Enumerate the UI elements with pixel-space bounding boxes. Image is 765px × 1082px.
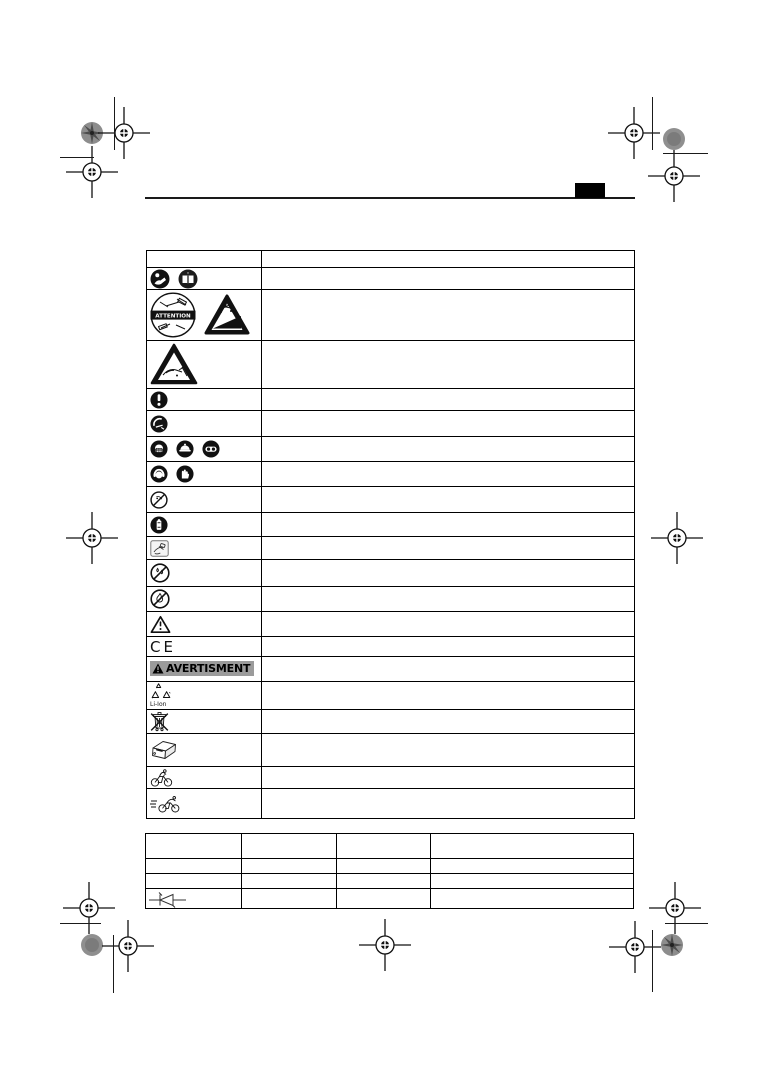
table-row <box>147 486 635 512</box>
no-touch-prohibition-icon <box>150 491 168 509</box>
general-warning-icon <box>150 615 171 634</box>
symbol-description <box>262 461 635 486</box>
dust-mask-icon <box>150 440 168 458</box>
table-row <box>146 889 634 909</box>
spec-cell <box>242 889 337 909</box>
symbol-cell <box>147 461 262 486</box>
registration-mark-icon <box>609 921 661 973</box>
spec-cell <box>431 874 634 889</box>
registration-mark-icon <box>648 150 700 202</box>
diode-icon <box>149 892 187 908</box>
li-ion-recycle-icon: Li-Ion <box>150 682 174 708</box>
symbol-description <box>262 559 635 586</box>
safety-helmet-icon <box>176 440 194 458</box>
symbol-description <box>262 709 635 733</box>
rotating-blade-circle-icon <box>150 415 168 433</box>
trim-line <box>665 923 708 924</box>
weee-bin-icon <box>150 711 169 732</box>
no-fire-prohibition-icon <box>150 589 170 609</box>
symbol-cell <box>147 486 262 512</box>
table-row <box>147 410 635 436</box>
ce-mark: CE <box>150 638 176 656</box>
spec-cell <box>242 859 337 874</box>
spec-cell <box>431 889 634 909</box>
table-row <box>147 251 635 268</box>
trim-line <box>60 157 94 158</box>
spec-cell <box>146 874 242 889</box>
speed-bicycle-icon <box>150 796 180 813</box>
protective-gloves-icon <box>176 465 194 483</box>
li-ion-label: Li-Ion <box>150 702 174 708</box>
spec-header-cell <box>337 834 431 859</box>
symbol-description <box>262 436 635 461</box>
charger-icon <box>150 738 178 762</box>
symbol-description <box>262 512 635 536</box>
thrown-objects-warning-icon <box>204 294 250 336</box>
spec-cell <box>146 859 242 874</box>
spec-cell <box>337 889 431 909</box>
color-patch-icon <box>80 933 104 957</box>
attention-circle-icon: ATTENTION <box>150 292 196 338</box>
table-row <box>147 268 635 290</box>
eye-protection-icon <box>202 440 220 458</box>
symbol-cell <box>147 268 262 290</box>
symbol-cell <box>147 559 262 586</box>
symbol-description <box>262 733 635 766</box>
cut-hand-warning-icon <box>150 343 198 385</box>
symbol-cell <box>147 788 262 818</box>
trim-line <box>114 97 115 150</box>
symbol-description <box>262 586 635 611</box>
symbol-cell <box>147 733 262 766</box>
symbol-cell <box>147 766 262 788</box>
symbol-description <box>262 340 635 388</box>
symbol-cell: ATTENTION <box>147 289 262 340</box>
warning-triangle-icon <box>152 663 164 674</box>
symbol-cell <box>147 251 262 268</box>
table-row <box>147 709 635 733</box>
symbol-description <box>262 681 635 709</box>
spec-cell <box>146 889 242 909</box>
spec-cell <box>431 859 634 874</box>
symbol-description <box>262 388 635 410</box>
symbol-description <box>262 788 635 818</box>
table-row: AVERTISMENT <box>147 656 635 681</box>
symbol-description <box>262 486 635 512</box>
color-patch-icon <box>660 933 684 957</box>
warning-badge-text: AVERTISMENT <box>166 662 250 675</box>
instruction-book-icon <box>178 269 198 289</box>
spec-cell <box>337 874 431 889</box>
read-manual-icon <box>150 269 170 289</box>
symbol-cell: CE <box>147 636 262 656</box>
symbol-description <box>262 536 635 559</box>
spec-header-cell <box>431 834 634 859</box>
symbol-cell: Li-Ion <box>147 681 262 709</box>
symbol-description <box>262 611 635 636</box>
spec-header-cell <box>146 834 242 859</box>
symbol-cell <box>147 410 262 436</box>
spec-cell <box>337 859 431 874</box>
table-row: CE <box>147 636 635 656</box>
symbol-cell <box>147 388 262 410</box>
trim-line <box>652 97 653 150</box>
table-row <box>147 340 635 388</box>
table-row <box>146 874 634 889</box>
table-row <box>146 834 634 859</box>
table-row <box>147 461 635 486</box>
trim-line <box>113 935 114 993</box>
symbol-description <box>262 268 635 290</box>
table-row: Li-Ion <box>147 681 635 709</box>
symbol-description <box>262 766 635 788</box>
table-row <box>146 859 634 874</box>
exclamation-circle-icon <box>150 391 168 409</box>
table-row <box>147 766 635 788</box>
remove-battery-icon <box>150 516 168 534</box>
table-row <box>147 436 635 461</box>
symbol-cell <box>147 512 262 536</box>
symbol-cell <box>147 586 262 611</box>
table-row <box>147 586 635 611</box>
table-row <box>147 512 635 536</box>
insert-battery-hand-icon <box>150 540 169 557</box>
spec-table <box>145 833 634 909</box>
bicycle-icon <box>150 769 173 787</box>
table-row <box>147 611 635 636</box>
header-rule <box>145 197 635 199</box>
symbol-description <box>262 251 635 268</box>
table-row <box>147 559 635 586</box>
symbol-description <box>262 289 635 340</box>
color-patch-icon <box>662 127 686 151</box>
symbol-cell <box>147 709 262 733</box>
svg-text:ATTENTION: ATTENTION <box>155 313 191 319</box>
warning-badge: AVERTISMENT <box>150 661 254 676</box>
page-number-tab <box>575 183 605 198</box>
spec-header-cell <box>242 834 337 859</box>
manual-page: ATTENTION <box>0 0 765 1082</box>
table-row <box>147 536 635 559</box>
table-row <box>147 733 635 766</box>
trim-line <box>663 153 708 154</box>
symbol-cell <box>147 436 262 461</box>
registration-mark-icon <box>102 920 154 972</box>
symbol-cell <box>147 611 262 636</box>
table-row: ATTENTION <box>147 289 635 340</box>
symbol-cell <box>147 340 262 388</box>
registration-mark-icon <box>66 512 118 564</box>
registration-mark-icon <box>359 919 411 971</box>
trim-line <box>60 923 101 924</box>
symbol-description <box>262 636 635 656</box>
registration-mark-icon <box>66 146 118 198</box>
table-row <box>147 388 635 410</box>
symbols-table: ATTENTION <box>146 250 635 819</box>
no-water-prohibition-icon <box>150 563 170 583</box>
registration-mark-icon <box>651 512 703 564</box>
symbol-cell <box>147 536 262 559</box>
trim-line <box>652 930 653 992</box>
table-row <box>147 788 635 818</box>
symbol-description <box>262 656 635 681</box>
symbol-description <box>262 410 635 436</box>
ear-protection-icon <box>150 465 168 483</box>
symbol-cell: AVERTISMENT <box>147 656 262 681</box>
spec-cell <box>242 874 337 889</box>
